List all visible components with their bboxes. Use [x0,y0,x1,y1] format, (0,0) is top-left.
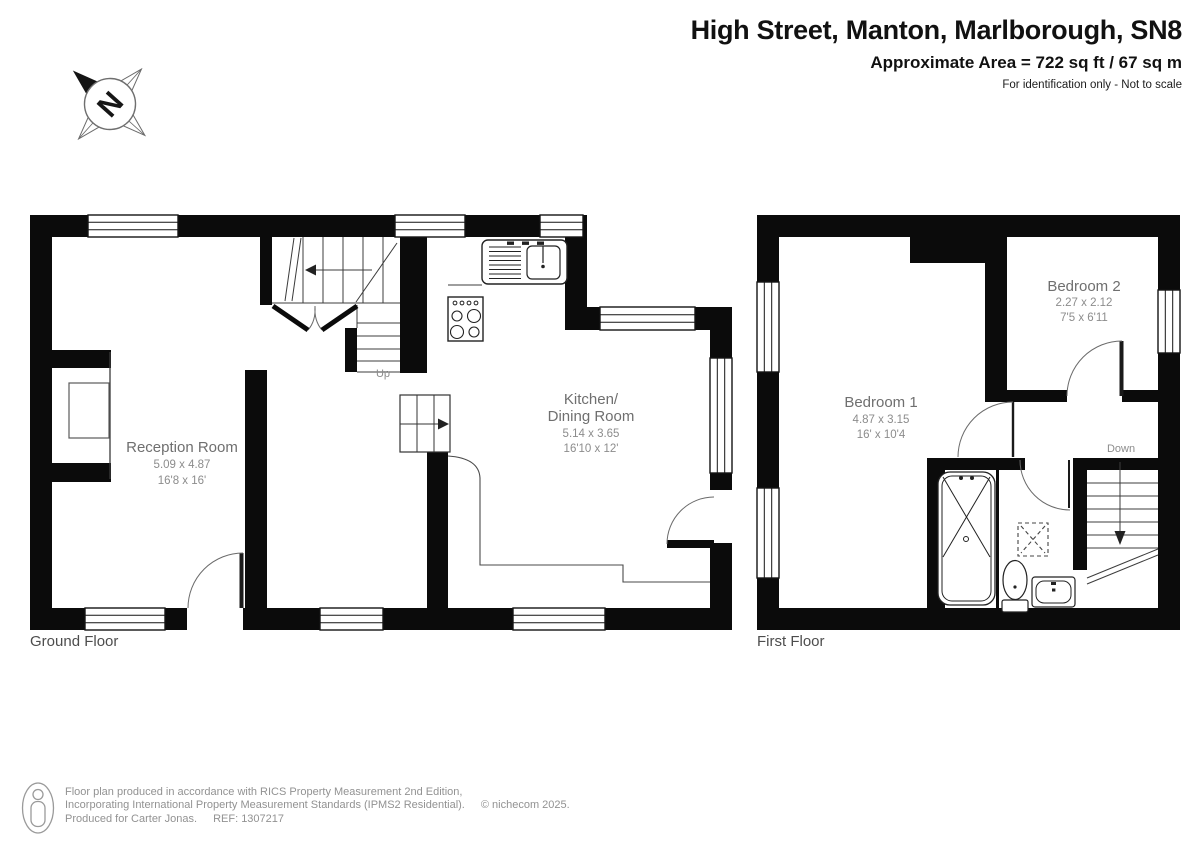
window-icon [540,215,583,237]
ground-floor-label: Ground Floor [30,633,118,650]
room-dim-imperial: 16' x 10'4 [857,429,906,441]
room-dim-metric: 5.14 x 3.65 [563,428,620,440]
stairs-up-label: Up [376,368,390,380]
toilet [1002,561,1028,613]
footer-line1: Floor plan produced in accordance with R… [65,786,462,799]
bedroom2-door [1067,341,1124,396]
floor-step-line [448,456,710,582]
room-label-reception: Reception Room [126,439,238,456]
bedroom1-door [958,402,1013,457]
window-icon [513,608,605,630]
stairs-down-label: Down [1107,443,1135,455]
loft-hatch [1018,523,1048,556]
floorplan-canvas: N [0,0,1200,848]
first-floor-plan: Bedroom 1 4.87 x 3.15 16' x 10'4 Bedroom… [757,215,1180,650]
window-icon [88,215,178,237]
room-label-bedroom1: Bedroom 1 [844,394,917,411]
footer-text: Floor plan produced in accordance with R… [65,786,570,826]
window-icon [600,307,695,330]
stairs-up-arrow-icon [305,265,316,276]
footer-produced: Produced for Carter Jonas. [65,813,197,826]
footer-copyright: © nichecom 2025. [481,799,570,812]
window-icon [710,358,732,473]
hob [448,297,483,341]
window-icon [757,282,779,372]
front-door [188,553,244,608]
window-icon [757,488,779,578]
front-door-opening [187,608,243,630]
basin [1032,577,1075,607]
room-dim-imperial: 16'10 x 12' [564,443,619,455]
room-dim-metric: 2.27 x 2.12 [1056,297,1113,309]
kitchen-door-opening [710,490,732,543]
room-dim-imperial: 7'5 x 6'11 [1060,312,1108,324]
room-label-kitchen-line1: Kitchen/ [564,391,619,408]
fireplace-stove [69,383,109,438]
first-staircase [1087,462,1158,584]
room-label-kitchen-line2: Dining Room [548,408,635,425]
room-dim-metric: 5.09 x 4.87 [154,459,211,471]
footer-line2: Incorporating International Property Mea… [65,799,465,812]
bath [938,472,995,605]
room-dim-metric: 4.87 x 3.15 [853,414,910,426]
window-icon [1158,290,1180,353]
window-icon [85,608,165,630]
ground-staircase [272,237,400,372]
bathroom-door [1020,460,1070,510]
footer-ref: REF: 1307217 [213,813,284,826]
window-icon [395,215,465,237]
stairs-down-arrow-icon [1115,531,1126,545]
first-floor-label: First Floor [757,633,825,650]
compass-icon: N [41,36,176,171]
ground-floor-plan: Reception Room 5.09 x 4.87 16'8 x 16' Ki… [30,215,732,650]
window-icon [320,608,383,630]
person-logo-icon [20,781,56,835]
room-dim-imperial: 16'8 x 16' [158,475,207,487]
kitchen-door [667,497,714,548]
room-label-bedroom2: Bedroom 2 [1047,278,1120,295]
kitchen-sink [482,240,567,284]
hall-steps [400,395,450,452]
footer: Floor plan produced in accordance with R… [20,781,570,835]
